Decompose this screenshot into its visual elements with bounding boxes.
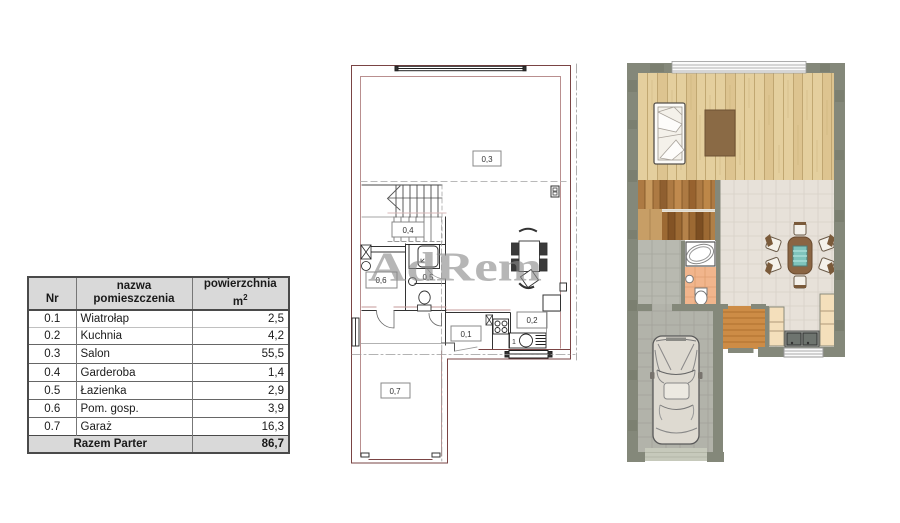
svg-text:AdRem: AdRem — [368, 244, 542, 290]
svg-text:1: 1 — [512, 339, 516, 346]
svg-text:0,3: 0,3 — [481, 155, 493, 164]
svg-text:0,2: 0,2 — [526, 316, 538, 325]
svg-text:0,4: 0,4 — [402, 226, 414, 235]
svg-text:0,7: 0,7 — [389, 387, 401, 396]
svg-text:0,1: 0,1 — [460, 330, 472, 339]
